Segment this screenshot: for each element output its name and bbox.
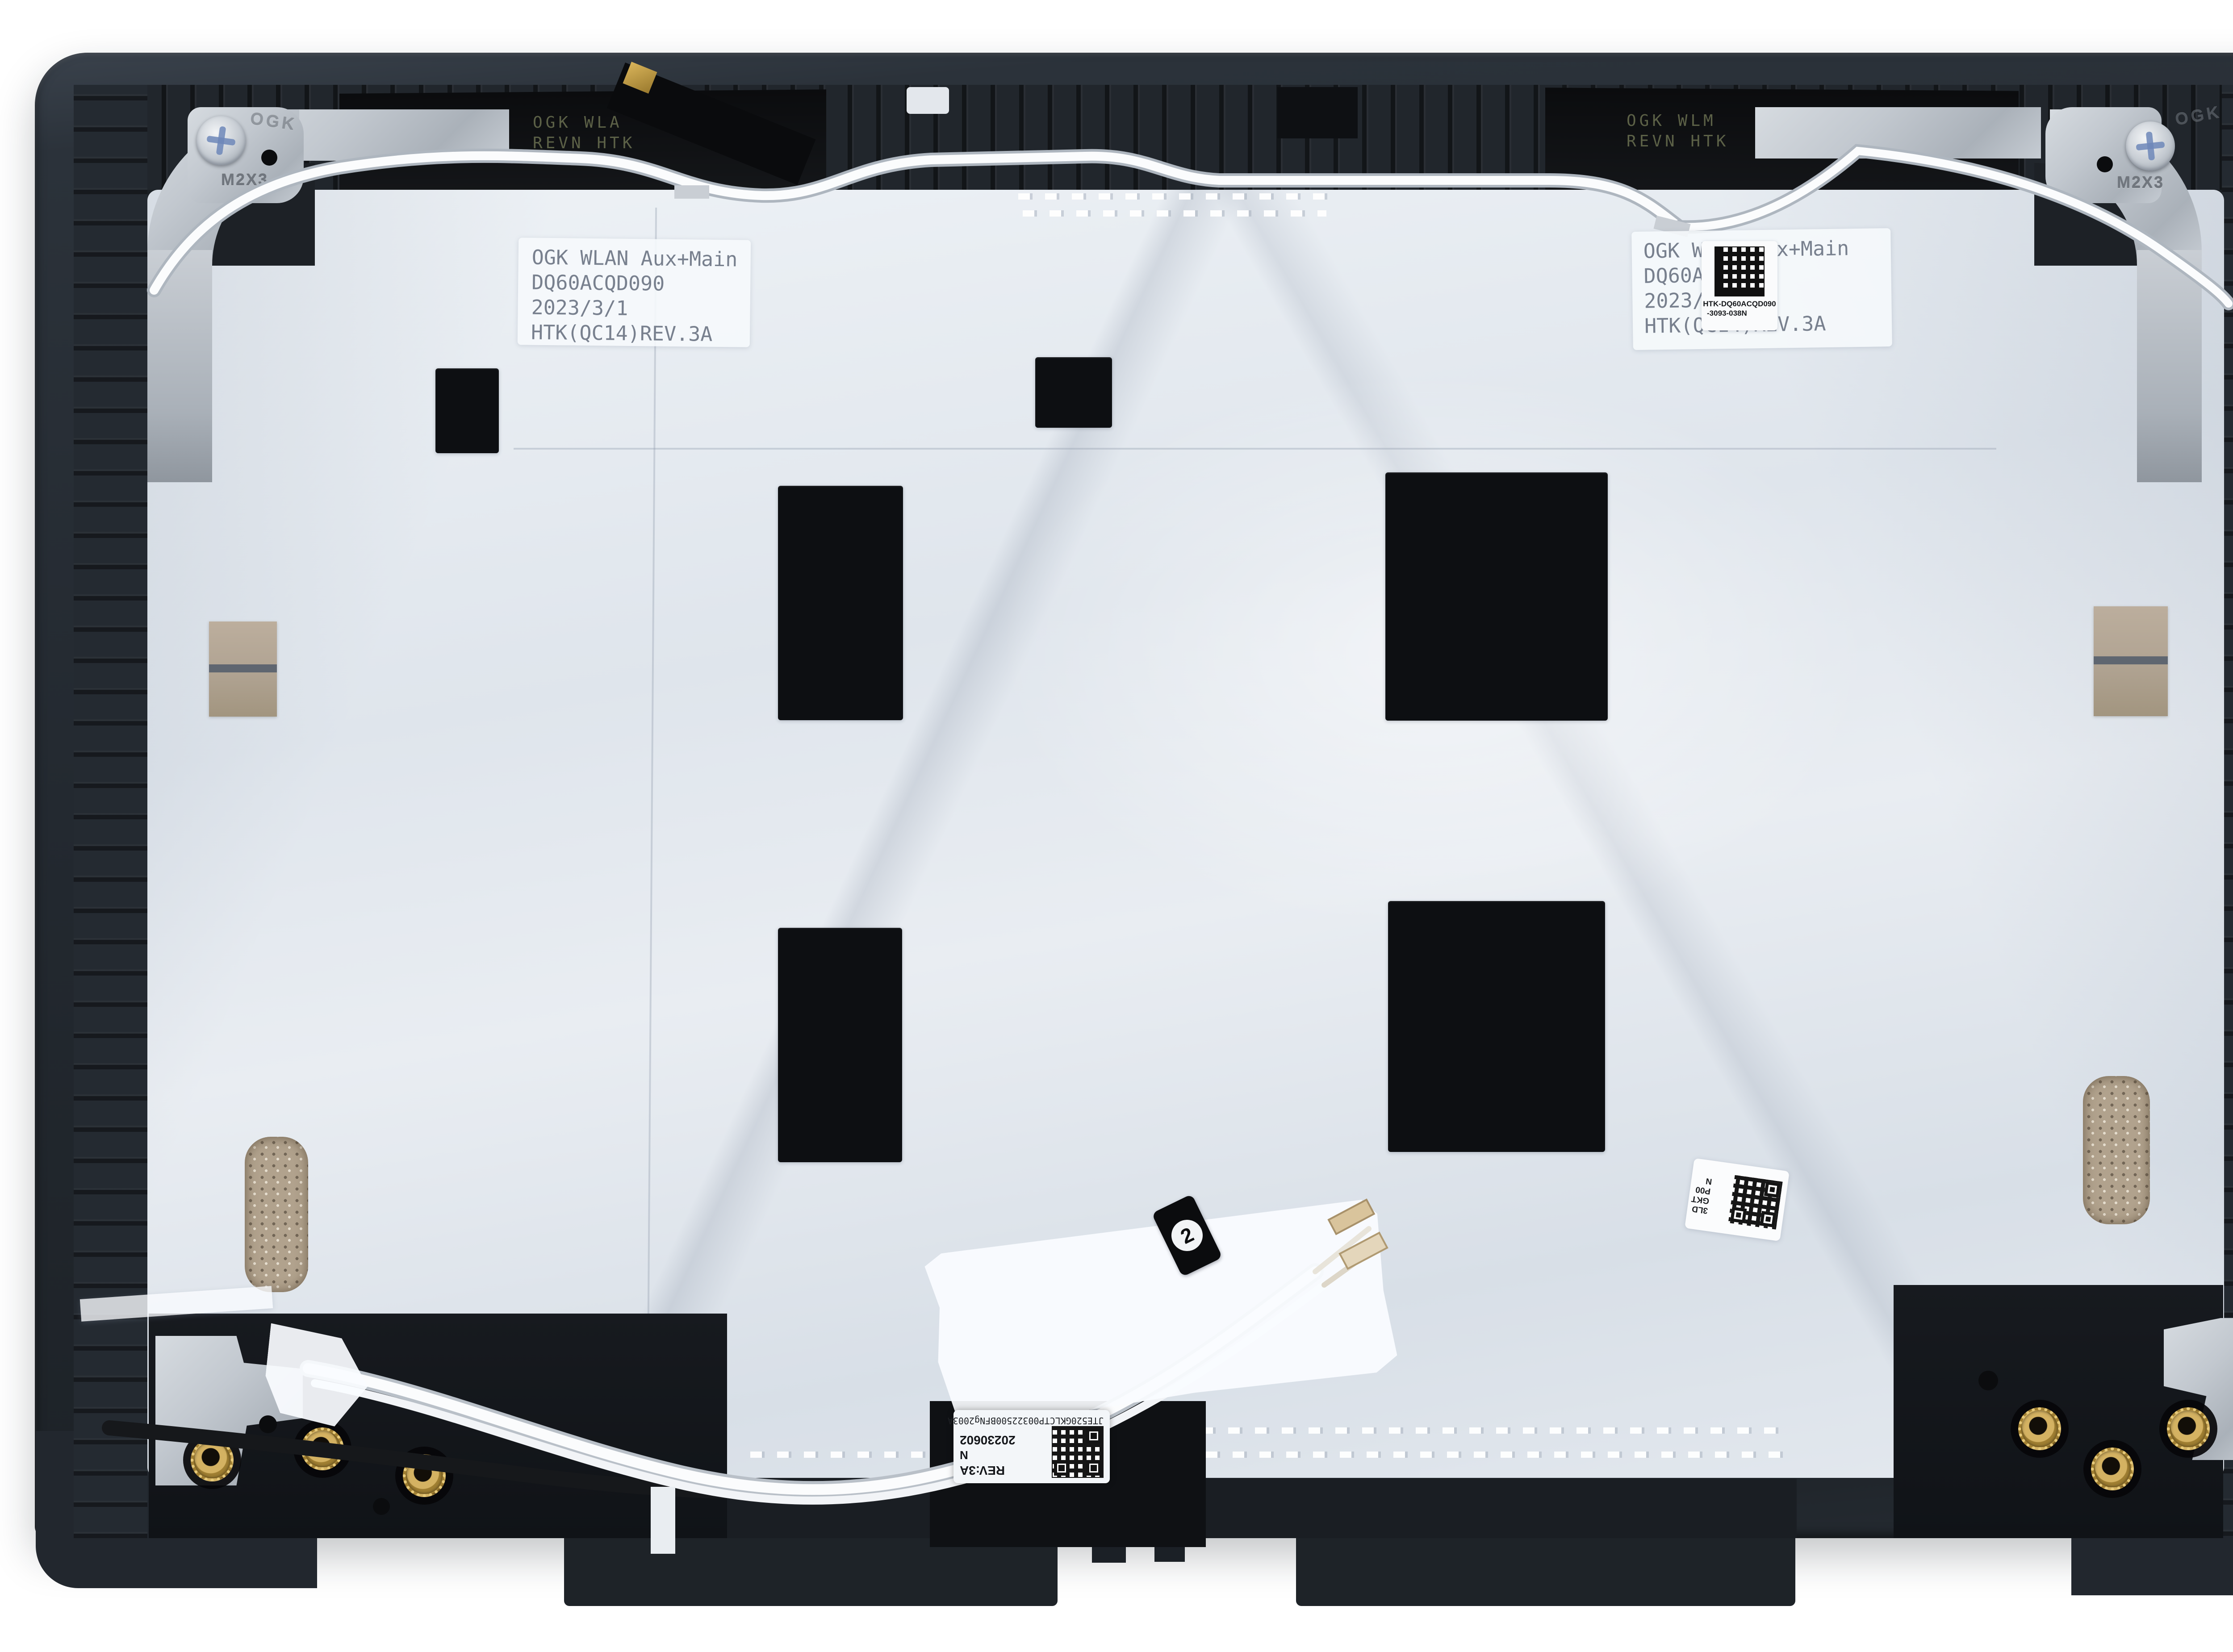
foil-seam-vertical [647,208,657,1373]
product-date: 20230602 [960,1432,1016,1448]
label-line: HTK(QC14)REV.3A [531,320,750,347]
product-grade: N [960,1448,1016,1463]
absorber-pad-small-center [1035,357,1112,428]
label-line: 2023/3/1 [531,295,750,322]
side-pad-stripe [209,664,277,672]
antenna-print-left: OGK WLAREVN HTK [533,113,635,154]
absorber-pad-upper-right [1385,472,1608,721]
product-label-qr [1052,1426,1104,1478]
foil-perforation-row [1018,193,1331,200]
foil-seam-horizontal [514,448,1996,450]
bracket-hole-right [2097,156,2113,172]
datamatrix-text-line2: -3093-038N [1702,309,1777,318]
film-strip-bottom [651,1487,675,1554]
process-qr-text: 3LD GKT P00 N [1687,1173,1717,1216]
screw-left [197,116,246,165]
brass-insert [301,1427,344,1470]
hinge-bracket-top-right-leg [2137,250,2202,482]
absorber-pad-lower-left [778,928,902,1162]
qr-finder [1730,1207,1747,1223]
qr-finder [1764,1181,1781,1198]
hinge-bracket-top-left-leg [147,250,212,482]
cable-tag-number: 2 [1166,1214,1208,1256]
process-qr-code [1728,1175,1783,1230]
brass-insert [2018,1407,2061,1450]
product-revision: REV:3A [960,1463,1016,1478]
qr-finder [1086,1460,1102,1476]
hinge-bracket-top-right-band [1755,107,2041,159]
absorber-pad-lower-right [1388,901,1605,1152]
cable-clip [907,87,949,114]
bracket-hole-left [261,150,277,166]
qr-finder [1054,1460,1070,1476]
product-serial: JTE520GKLCTP00322500BFNg2003A [960,1415,1104,1426]
brass-insert [2167,1407,2210,1450]
bottom-edge-strip [727,1479,1797,1538]
absorber-pad-upper-left [778,486,903,720]
antenna-left-line2: REVN HTK [533,134,635,152]
screw-right [2126,121,2175,171]
absorber-pad-small-left [435,368,499,453]
antenna-right-line1: OGK WLM [1627,112,1716,130]
product-label: REV:3A N 20230602 JTE520GKLCTP00322500BF… [953,1410,1110,1483]
wlan-label-left: OGK WLAN Aux+Main DQ60ACQD090 2023/3/1 H… [518,238,751,347]
screw-hole [373,1498,390,1515]
antenna-right-line2: REVN HTK [1627,132,1729,150]
antenna-left-line1: OGK WLA [533,113,623,132]
product-label-row: REV:3A N 20230602 [960,1426,1104,1478]
process-qr-sticker: 3LD GKT P00 N [1685,1158,1790,1241]
screw-size-marking-right: M2X3 [2117,173,2164,192]
brass-insert [403,1454,446,1497]
foam-gasket-left [245,1137,308,1292]
label-line: DQ60ACQD090 [531,270,751,297]
foam-gasket-right [2083,1076,2150,1224]
foil-perforation-row [1201,1427,1791,1434]
datamatrix-code [1714,246,1765,296]
hinge-area-right [1894,1285,2223,1538]
side-pad-stripe [2094,656,2168,664]
label-line: OGK WLAN Aux+Main [532,245,751,272]
product-label-fields: REV:3A N 20230602 [960,1432,1016,1478]
top-center-block [1277,87,1358,138]
side-pad-right [2094,606,2168,716]
side-pad-left [209,622,277,717]
screw-hole [259,1415,277,1433]
brass-insert [2091,1448,2134,1490]
brass-insert [191,1439,234,1481]
bottom-lip-right [1296,1532,1795,1606]
screw-size-marking-left: M2X3 [221,171,268,189]
foil-perforation-row [750,1452,1791,1458]
qr-finder [1760,1211,1777,1227]
foil-perforation-row [1023,210,1326,217]
antenna-print-right: OGK WLMREVN HTK [1627,111,1729,152]
datamatrix-sticker: HTK-DQ60ACQD090 -3093-038N [1702,241,1777,330]
qr-finder [1086,1428,1102,1444]
datamatrix-text-line1: HTK-DQ60ACQD090 [1702,299,1777,309]
screw-hole [1978,1371,1998,1390]
photo-laptop-lcd-back-cover: OGK WLAREVN HTK OGK WLMREVN HTK [0,0,2233,1652]
